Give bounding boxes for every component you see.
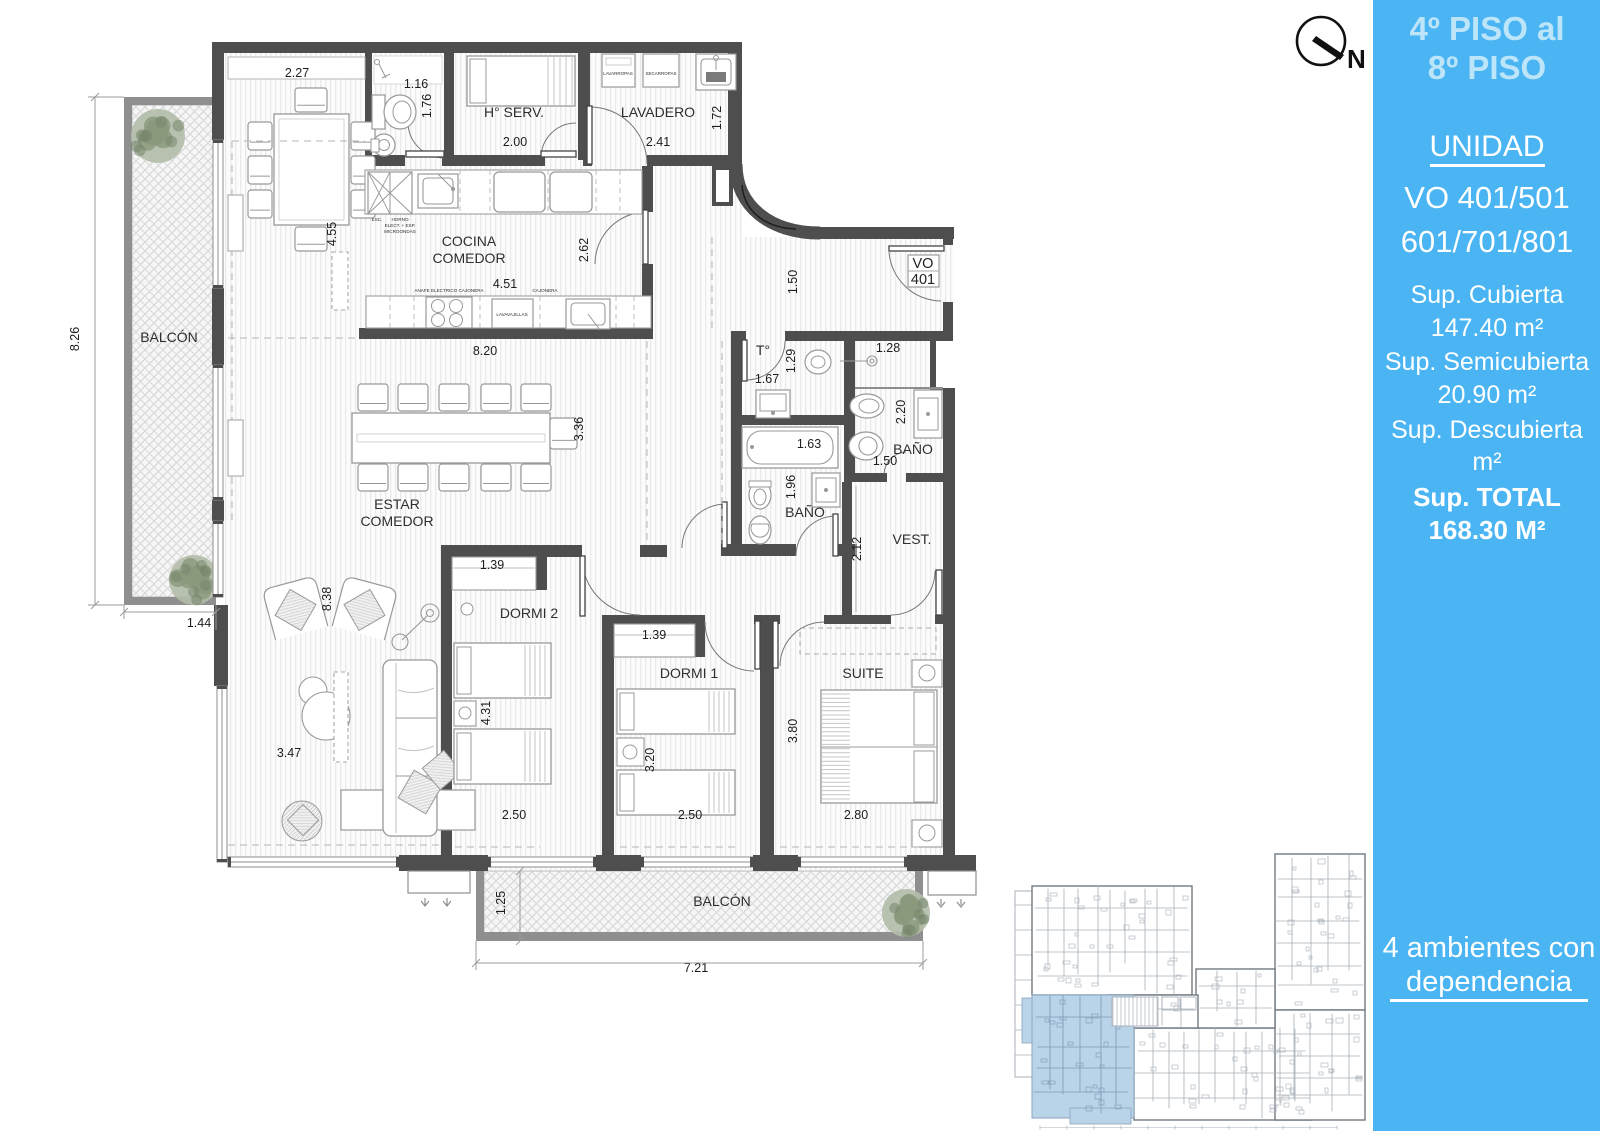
svg-text:2.27: 2.27 (285, 66, 309, 80)
svg-text:LAVADERO: LAVADERO (621, 104, 695, 120)
svg-text:2.00: 2.00 (503, 135, 527, 149)
svg-text:ESTAR: ESTAR (374, 496, 420, 512)
svg-text:Sup. Descubierta: Sup. Descubierta (1391, 416, 1583, 444)
svg-text:4 ambientes con: 4 ambientes con (1383, 932, 1596, 964)
svg-text:168.30 M²: 168.30 M² (1428, 515, 1545, 545)
svg-text:LAVAVAJILLAS: LAVAVAJILLAS (496, 312, 527, 317)
svg-text:COCINA: COCINA (442, 233, 497, 249)
svg-text:VEST.: VEST. (893, 531, 932, 547)
svg-text:1.16: 1.16 (404, 77, 428, 91)
svg-text:1.67: 1.67 (755, 372, 779, 386)
svg-text:1.63: 1.63 (797, 437, 821, 451)
svg-text:4.51: 4.51 (493, 277, 517, 291)
svg-text:1.29: 1.29 (784, 349, 798, 373)
svg-text:Sup. Cubierta: Sup. Cubierta (1411, 281, 1564, 309)
svg-text:401: 401 (911, 272, 935, 288)
svg-text:4.31: 4.31 (479, 701, 493, 725)
svg-text:HORNO: HORNO (391, 217, 409, 222)
svg-text:147.40 m²: 147.40 m² (1431, 314, 1544, 342)
svg-text:3.36: 3.36 (572, 417, 586, 441)
svg-text:2.62: 2.62 (577, 238, 591, 262)
svg-text:1.50: 1.50 (873, 454, 897, 468)
svg-text:8.38: 8.38 (320, 587, 334, 611)
svg-text:1.25: 1.25 (494, 891, 508, 915)
svg-text:3.20: 3.20 (643, 748, 657, 772)
svg-text:dependencia: dependencia (1406, 966, 1573, 998)
svg-text:VO 401/501: VO 401/501 (1404, 180, 1569, 215)
svg-text:2.50: 2.50 (678, 808, 702, 822)
svg-text:BAÑO: BAÑO (893, 441, 933, 457)
svg-text:1.72: 1.72 (710, 106, 724, 130)
svg-text:BALCÓN: BALCÓN (693, 893, 751, 909)
svg-text:1.44: 1.44 (187, 616, 211, 630)
svg-text:1.76: 1.76 (420, 94, 434, 118)
svg-text:ANAFE ELECTRICO CAJONERA: ANAFE ELECTRICO CAJONERA (414, 288, 484, 293)
svg-text:2.12: 2.12 (850, 537, 864, 561)
svg-text:8.20: 8.20 (473, 344, 497, 358)
svg-text:N: N (1347, 44, 1366, 74)
svg-text:Sup. Semicubierta: Sup. Semicubierta (1385, 348, 1589, 376)
svg-text:LAVARROPAS: LAVARROPAS (603, 71, 633, 76)
svg-text:T°: T° (756, 342, 770, 358)
svg-text:VO: VO (913, 256, 934, 272)
svg-text:SECARROPAS: SECARROPAS (646, 71, 677, 76)
svg-text:m²: m² (1472, 448, 1501, 476)
svg-text:H° SERV.: H° SERV. (484, 104, 544, 120)
svg-text:601/701/801: 601/701/801 (1401, 224, 1573, 259)
svg-text:BAÑO: BAÑO (785, 504, 825, 520)
svg-text:COMEDOR: COMEDOR (360, 513, 433, 529)
svg-text:BALCÓN: BALCÓN (140, 329, 198, 345)
svg-text:8º PISO: 8º PISO (1428, 49, 1546, 86)
svg-text:1.39: 1.39 (480, 558, 504, 572)
svg-text:2.41: 2.41 (646, 135, 670, 149)
svg-text:8.26: 8.26 (68, 327, 82, 351)
svg-text:2.20: 2.20 (894, 400, 908, 424)
svg-text:1.96: 1.96 (784, 475, 798, 499)
svg-text:1.28: 1.28 (876, 341, 900, 355)
svg-text:4.55: 4.55 (325, 222, 339, 246)
svg-text:1.50: 1.50 (786, 270, 800, 294)
svg-text:DORMI 1: DORMI 1 (660, 665, 719, 681)
svg-text:3.80: 3.80 (786, 719, 800, 743)
svg-text:DORMI 2: DORMI 2 (500, 605, 559, 621)
svg-text:COMEDOR: COMEDOR (432, 250, 505, 266)
svg-text:3.47: 3.47 (277, 746, 301, 760)
svg-text:ESC.: ESC. (372, 217, 383, 222)
svg-text:Sup. TOTAL: Sup. TOTAL (1413, 482, 1561, 512)
svg-text:CAJONERA: CAJONERA (532, 288, 558, 293)
svg-text:ELECT. + ESP.: ELECT. + ESP. (385, 223, 416, 228)
svg-text:SUITE: SUITE (842, 665, 883, 681)
svg-text:UNIDAD: UNIDAD (1429, 130, 1544, 163)
svg-text:MICROONDAS: MICROONDAS (384, 229, 416, 234)
svg-text:20.90 m²: 20.90 m² (1438, 381, 1537, 409)
svg-text:2.80: 2.80 (844, 808, 868, 822)
svg-text:4º PISO al: 4º PISO al (1409, 10, 1564, 47)
svg-text:1.39: 1.39 (642, 628, 666, 642)
svg-text:2.50: 2.50 (502, 808, 526, 822)
